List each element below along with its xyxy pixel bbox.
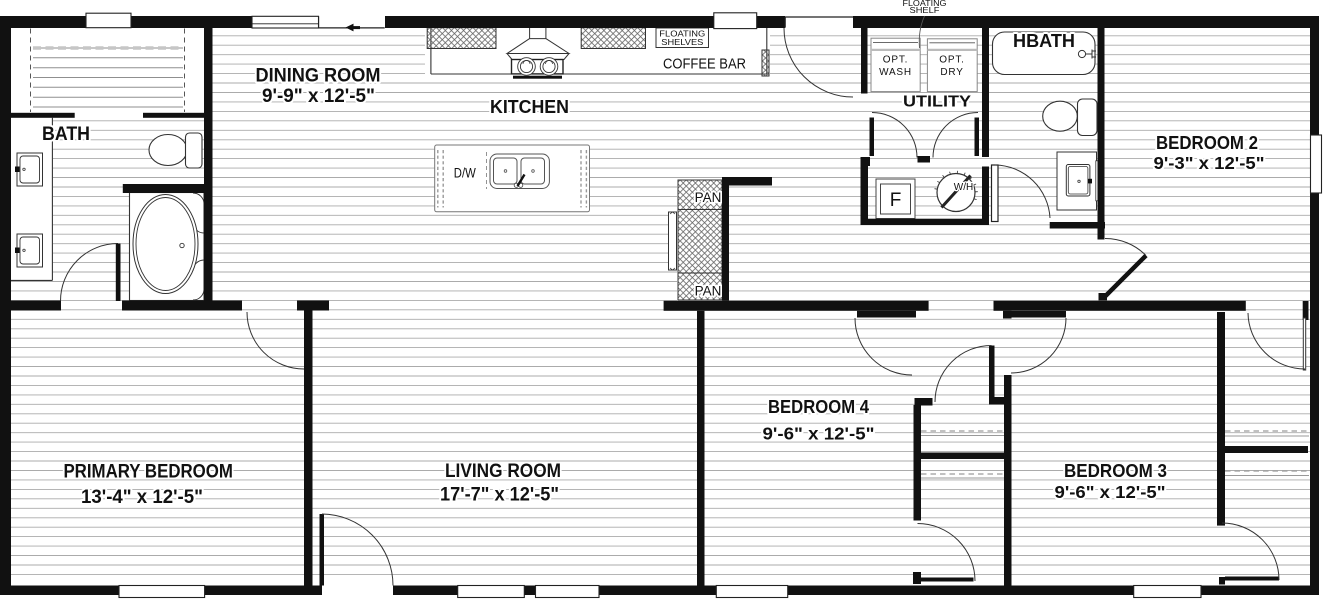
svg-text:BEDROOM 2: BEDROOM 2 <box>1156 133 1258 153</box>
svg-text:DRY: DRY <box>940 67 963 78</box>
svg-text:BEDROOM 3: BEDROOM 3 <box>1064 461 1167 481</box>
svg-text:W/H: W/H <box>954 182 973 193</box>
svg-text:9'-6" x 12'-5": 9'-6" x 12'-5" <box>763 424 875 444</box>
svg-text:9'-3" x 12'-5": 9'-3" x 12'-5" <box>1154 153 1265 173</box>
svg-text:17'-7" x 12'-5": 17'-7" x 12'-5" <box>440 485 559 506</box>
svg-text:PRIMARY BEDROOM: PRIMARY BEDROOM <box>63 461 233 483</box>
svg-text:13'-4" x 12'-5": 13'-4" x 12'-5" <box>81 487 203 508</box>
svg-text:PAN: PAN <box>695 190 722 205</box>
svg-text:SHELVES: SHELVES <box>661 37 703 47</box>
svg-text:OPT.: OPT. <box>883 55 908 66</box>
svg-text:DINING ROOM: DINING ROOM <box>256 65 381 87</box>
svg-text:SHELF: SHELF <box>910 6 940 15</box>
svg-text:OPT.: OPT. <box>939 55 964 66</box>
svg-text:PAN: PAN <box>695 284 722 299</box>
svg-text:KITCHEN: KITCHEN <box>490 96 569 117</box>
svg-text:COFFEE BAR: COFFEE BAR <box>663 56 746 73</box>
svg-text:9'-9" x 12'-5": 9'-9" x 12'-5" <box>262 86 375 107</box>
svg-text:HBATH: HBATH <box>1013 31 1075 51</box>
svg-text:LIVING ROOM: LIVING ROOM <box>445 460 561 482</box>
svg-text:D/W: D/W <box>454 165 476 180</box>
svg-text:9'-6" x 12'-5": 9'-6" x 12'-5" <box>1055 482 1166 502</box>
svg-text:F: F <box>890 190 902 211</box>
svg-text:BATH: BATH <box>42 124 90 145</box>
svg-text:UTILITY: UTILITY <box>903 93 971 110</box>
svg-text:BEDROOM 4: BEDROOM 4 <box>768 397 869 417</box>
svg-text:WASH: WASH <box>879 67 912 78</box>
